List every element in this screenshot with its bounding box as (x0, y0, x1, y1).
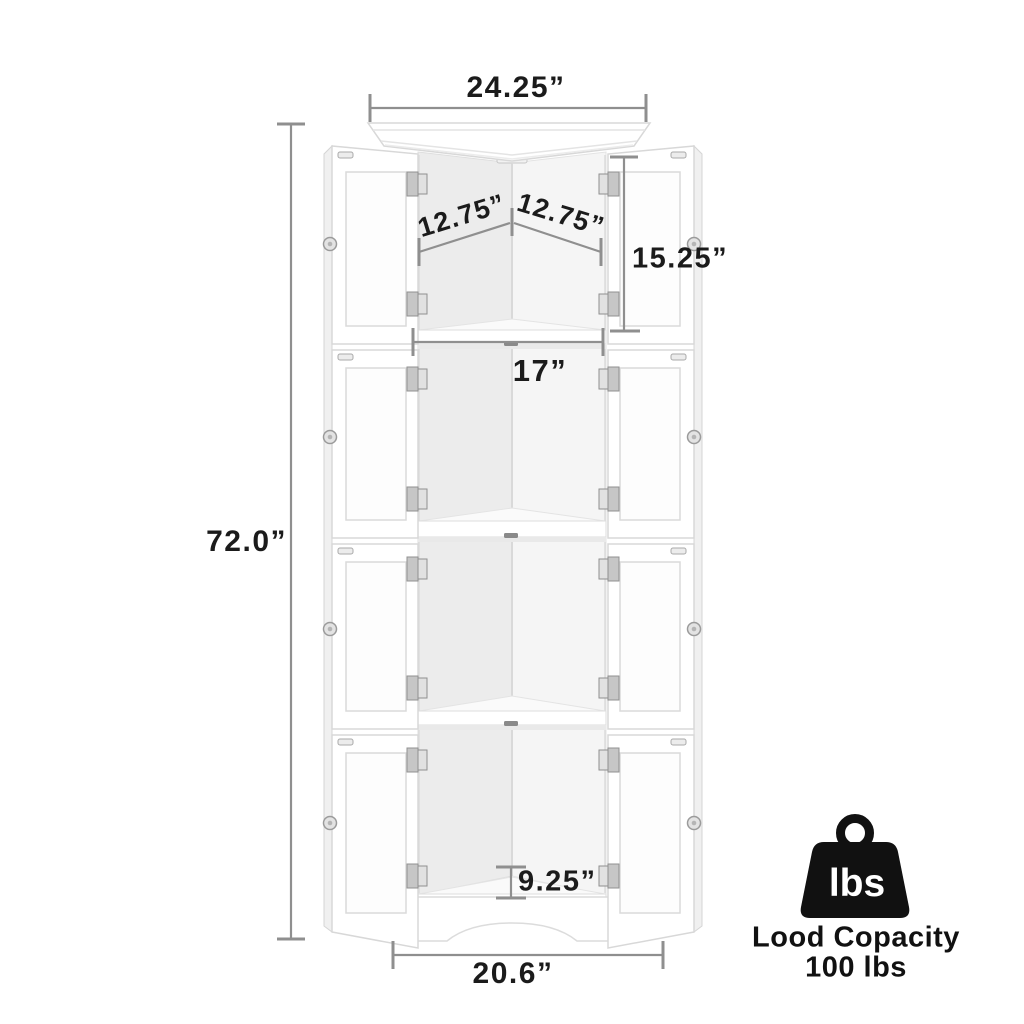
dimension-label-top-section-height: 15.25” (632, 243, 728, 276)
dimension-label-overall-height: 72.0” (206, 525, 287, 559)
dimension-label-base-width: 20.6” (473, 957, 554, 991)
weight-icon-label: lbs (829, 862, 885, 906)
dimension-label-bottom-section-height: 9.25” (518, 866, 596, 899)
dimension-label-top-width: 24.25” (466, 71, 565, 105)
product-dimension-diagram: 24.25” 12.75” 12.75” 15.25” 17” 72.0” 9.… (0, 0, 1024, 1024)
left-door-edge (324, 146, 332, 932)
load-capacity-value: 100 lbs (805, 952, 907, 985)
load-capacity-caption: Lood Copacity (752, 922, 960, 955)
left-door (324, 146, 418, 948)
dimension-label-shelf-width: 17” (513, 353, 567, 389)
base-apron (411, 897, 613, 941)
